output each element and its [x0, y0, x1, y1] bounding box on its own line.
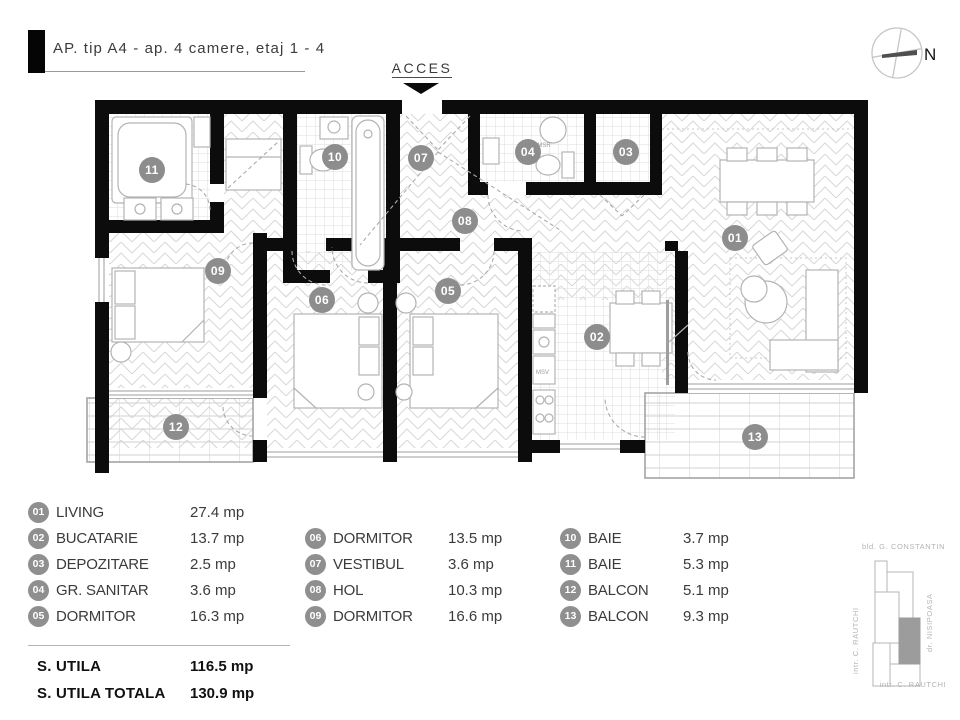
room-number-badge: 12	[560, 580, 581, 601]
legend-row: 02BUCATARIE13.7 mp	[28, 525, 298, 551]
plan-badge-13: 13	[742, 424, 768, 450]
minimap-street-left: intr. C. RAUTCHI	[851, 590, 860, 674]
room-name: BUCATARIE	[56, 530, 138, 547]
room-number-badge: 04	[28, 580, 49, 601]
room-area: 9.3 mp	[683, 608, 729, 625]
legend-column-1: 01LIVING27.4 mp 02BUCATARIE13.7 mp 03DEP…	[28, 499, 298, 629]
legend-row: 04GR. SANITAR3.6 mp	[28, 577, 298, 603]
totals-block: S. UTILA116.5 mp S. UTILA TOTALA130.9 mp	[28, 645, 290, 707]
plan-badge-05: 05	[435, 278, 461, 304]
plan-badge-06: 06	[309, 287, 335, 313]
room-area: 10.3 mp	[448, 582, 502, 599]
room-area: 13.5 mp	[448, 530, 502, 547]
minimap-street-right: dr. NISIPOASA	[925, 578, 934, 652]
totals-divider	[28, 645, 290, 646]
floor-plan-drawing: MSR MSV	[0, 0, 960, 495]
room-name: DORMITOR	[56, 608, 136, 625]
room-name: BALCON	[588, 608, 649, 625]
legend-column-3: 10BAIE3.7 mp 11BAIE5.3 mp 12BALCON5.1 mp…	[560, 525, 790, 629]
room-area: 3.6 mp	[448, 556, 494, 573]
room-name: BAIE	[588, 530, 621, 547]
room-area: 16.6 mp	[448, 608, 502, 625]
room-name: DEPOZITARE	[56, 556, 149, 573]
room-number-badge: 05	[28, 606, 49, 627]
total-value: 130.9 mp	[190, 685, 254, 702]
washer-label-msv: MSV	[536, 370, 549, 376]
minimap-street-bottom: intr. C. RAUTCHI	[868, 680, 958, 689]
total-row: S. UTILA116.5 mp	[28, 653, 290, 680]
plan-badge-11: 11	[139, 157, 165, 183]
plan-badge-03: 03	[613, 139, 639, 165]
plan-badge-02: 02	[584, 324, 610, 350]
legend-row: 03DEPOZITARE2.5 mp	[28, 551, 298, 577]
legend-row: 07VESTIBUL3.6 mp	[305, 551, 555, 577]
legend-row: 12BALCON5.1 mp	[560, 577, 790, 603]
plan-badge-04: 04	[515, 139, 541, 165]
room-number-badge: 09	[305, 606, 326, 627]
room-name: DORMITOR	[333, 530, 413, 547]
legend-row: 08HOL10.3 mp	[305, 577, 555, 603]
plan-badge-10: 10	[322, 144, 348, 170]
room-number-badge: 01	[28, 502, 49, 523]
room-area: 13.7 mp	[190, 530, 244, 547]
room-area: 5.3 mp	[683, 556, 729, 573]
room-area: 2.5 mp	[190, 556, 236, 573]
room-area: 3.6 mp	[190, 582, 236, 599]
plan-badge-07: 07	[408, 145, 434, 171]
room-name: BALCON	[588, 582, 649, 599]
legend-row: 11BAIE5.3 mp	[560, 551, 790, 577]
plan-badge-09: 09	[205, 258, 231, 284]
legend-row: 05DORMITOR16.3 mp	[28, 603, 298, 629]
room-name: LIVING	[56, 504, 104, 521]
room-number-badge: 06	[305, 528, 326, 549]
room-area: 27.4 mp	[190, 504, 244, 521]
minimap-street-top: bld. G. CONSTANTIN	[862, 542, 942, 551]
legend-row: 10BAIE3.7 mp	[560, 525, 790, 551]
room-number-badge: 13	[560, 606, 581, 627]
legend-row: 13BALCON9.3 mp	[560, 603, 790, 629]
total-label: S. UTILA	[28, 658, 101, 675]
legend-row: 09DORMITOR16.6 mp	[305, 603, 555, 629]
room-area: 5.1 mp	[683, 582, 729, 599]
plan-badge-01: 01	[722, 225, 748, 251]
room-name: VESTIBUL	[333, 556, 404, 573]
total-label: S. UTILA TOTALA	[28, 685, 166, 702]
room-area: 16.3 mp	[190, 608, 244, 625]
room-number-badge: 10	[560, 528, 581, 549]
total-value: 116.5 mp	[190, 658, 253, 675]
legend-row: 01LIVING27.4 mp	[28, 499, 298, 525]
room-name: HOL	[333, 582, 363, 599]
legend-column-2: 06DORMITOR13.5 mp 07VESTIBUL3.6 mp 08HOL…	[305, 525, 555, 629]
legend-row: 06DORMITOR13.5 mp	[305, 525, 555, 551]
highlighted-unit	[899, 618, 920, 664]
room-number-badge: 02	[28, 528, 49, 549]
room-name: GR. SANITAR	[56, 582, 149, 599]
plan-badge-08: 08	[452, 208, 478, 234]
room-name: BAIE	[588, 556, 621, 573]
plan-badge-12: 12	[163, 414, 189, 440]
room-area: 3.7 mp	[683, 530, 729, 547]
room-number-badge: 11	[560, 554, 581, 575]
room-number-badge: 08	[305, 580, 326, 601]
total-row: S. UTILA TOTALA130.9 mp	[28, 680, 290, 707]
room-number-badge: 07	[305, 554, 326, 575]
room-number-badge: 03	[28, 554, 49, 575]
room-name: DORMITOR	[333, 608, 413, 625]
floor-plan-page: AP. tip A4 - ap. 4 camere, etaj 1 - 4 AC…	[0, 0, 960, 720]
